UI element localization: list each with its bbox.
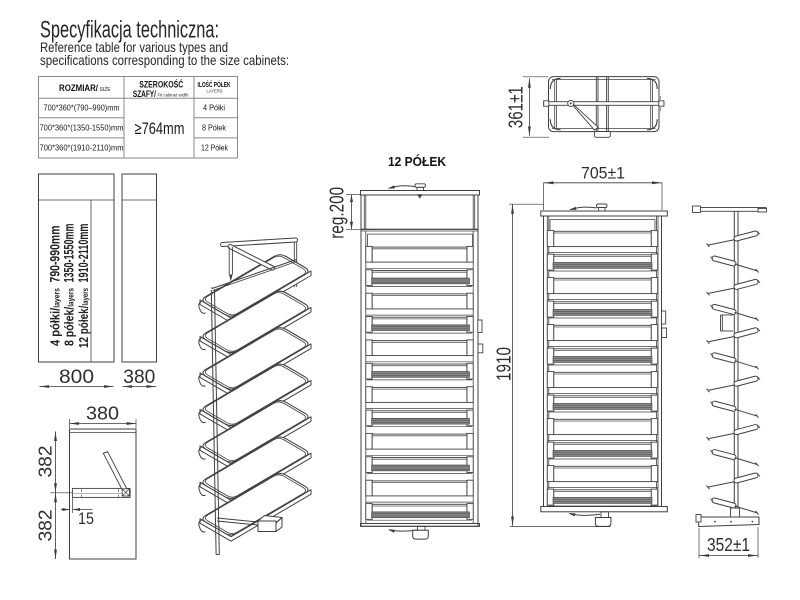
svg-text:15: 15 <box>78 509 94 528</box>
svg-text:LAYERS: LAYERS <box>206 88 222 93</box>
svg-text:12 PÓŁEK: 12 PÓŁEK <box>388 154 447 169</box>
svg-text:382: 382 <box>35 446 56 478</box>
svg-text:≥764mm: ≥764mm <box>135 119 185 138</box>
svg-text:8 Półek: 8 Półek <box>202 122 227 132</box>
svg-text:Fit cabinet width: Fit cabinet width <box>158 92 190 97</box>
svg-text:1910: 1910 <box>494 347 516 381</box>
svg-text:4 półki/layers: 4 półki/layers <box>48 288 63 346</box>
svg-text:SIZE: SIZE <box>100 87 112 93</box>
svg-text:1910-2110mm: 1910-2110mm <box>76 224 91 283</box>
svg-text:800: 800 <box>59 366 94 388</box>
svg-text:8 półek/layers: 8 półek/layers <box>62 288 77 346</box>
svg-text:352±1: 352±1 <box>707 534 750 555</box>
svg-text:specifications corresponding t: specifications corresponding to the size… <box>40 52 289 68</box>
svg-text:380: 380 <box>86 403 119 424</box>
svg-text:790-990mm: 790-990mm <box>48 226 63 283</box>
svg-text:ROZMIAR/: ROZMIAR/ <box>59 83 98 94</box>
svg-text:12 Półek: 12 Półek <box>201 143 229 153</box>
svg-text:700*360*(1910-2110)mm: 700*360*(1910-2110)mm <box>40 144 124 153</box>
svg-text:700*360*(1350-1550)mm: 700*360*(1350-1550)mm <box>40 123 124 132</box>
svg-text:SZAFY/: SZAFY/ <box>133 89 156 100</box>
svg-text:12 półek/layers: 12 półek/layers <box>76 288 91 348</box>
svg-text:1350-1550mm: 1350-1550mm <box>62 224 77 283</box>
svg-text:4 Półki: 4 Półki <box>203 103 225 113</box>
svg-text:700*360*(790–990)mm: 700*360*(790–990)mm <box>44 104 120 113</box>
svg-text:382: 382 <box>35 510 56 542</box>
svg-text:705±1: 705±1 <box>581 164 625 183</box>
svg-text:reg.200: reg.200 <box>327 187 349 239</box>
svg-text:380: 380 <box>123 366 155 388</box>
svg-text:361±1: 361±1 <box>506 86 528 128</box>
